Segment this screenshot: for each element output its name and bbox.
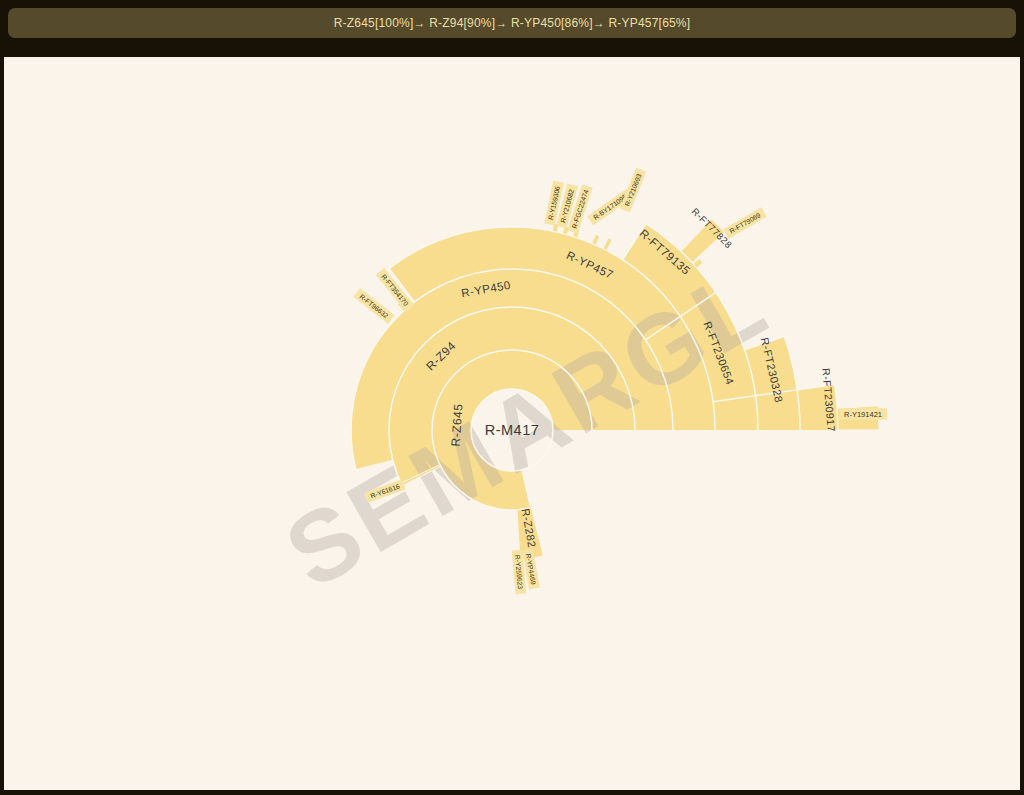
stub-label-R-Y210693[interactable]: R-Y210693 — [620, 168, 646, 213]
node-label-R-Z645[interactable]: R-Z645 — [449, 403, 466, 447]
breadcrumb-item-R-YP457[interactable]: R-YP457[65%] — [609, 16, 691, 30]
wedge-R-BY171095[interactable] — [592, 234, 600, 245]
breadcrumb-item-R-YP450[interactable]: R-YP450[86%] — [511, 16, 593, 30]
stub-label-text: R-Y191421 — [844, 410, 882, 419]
breadcrumb-separator-arrow: → — [413, 16, 429, 30]
stub-label-R-FT96632[interactable]: R-FT96632 — [353, 288, 394, 324]
wedge-R-Y210693[interactable] — [603, 238, 612, 251]
sunburst-chart: SEMARGLR-Y159306R-Y210682R-FGC22474R-BY1… — [4, 57, 1020, 790]
stub-label-text: R-FT96632 — [358, 293, 390, 320]
stub-label-text: R-FT79069 — [728, 211, 761, 234]
breadcrumb-separator-arrow: → — [593, 16, 609, 30]
breadcrumb-item-R-Z94[interactable]: R-Z94[90%] — [429, 16, 495, 30]
breadcrumb: R-Z645[100%]→ R-Z94[90%]→ R-YP450[86%]→ … — [334, 16, 691, 30]
breadcrumb-separator-arrow: → — [495, 16, 511, 30]
node-label-R-M417[interactable]: R-M417 — [485, 422, 540, 438]
breadcrumb-item-R-Z645[interactable]: R-Z645[100%] — [334, 16, 414, 30]
stub-label-R-Y191421[interactable]: R-Y191421 — [839, 408, 887, 420]
stub-label-R-FT79069[interactable]: R-FT79069 — [723, 207, 766, 238]
breadcrumb-bar[interactable]: R-Z645[100%]→ R-Z94[90%]→ R-YP450[86%]→ … — [8, 8, 1016, 38]
chart-canvas: SEMARGLR-Y159306R-Y210682R-FGC22474R-BY1… — [4, 57, 1020, 790]
